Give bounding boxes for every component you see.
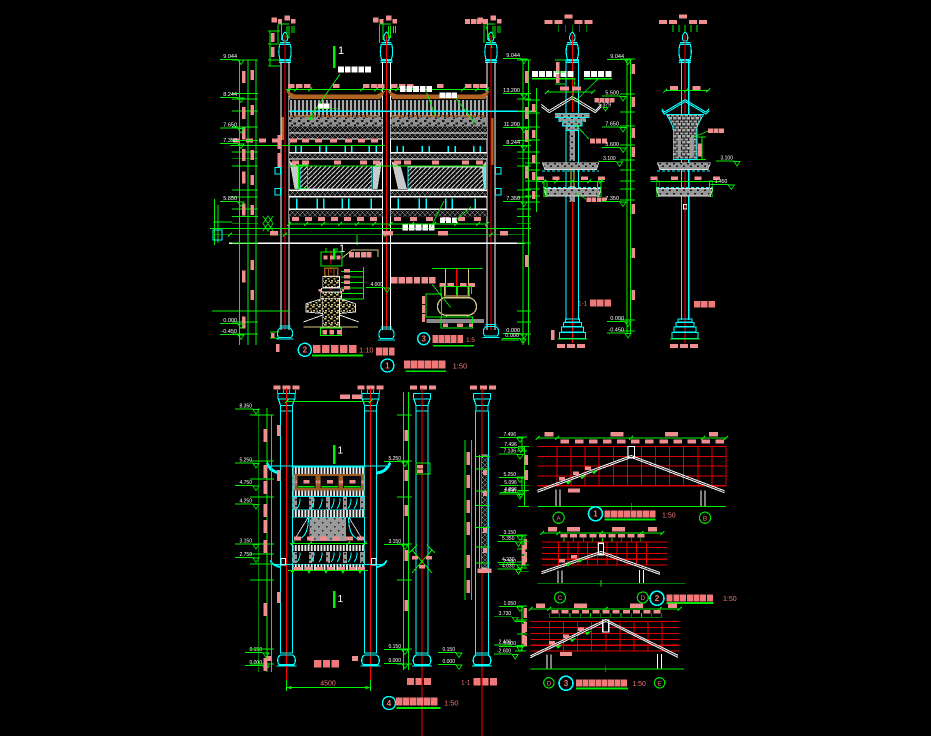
- svg-text:4500: 4500: [320, 681, 336, 688]
- svg-text:D: D: [547, 680, 552, 687]
- svg-text:1: 1: [338, 45, 344, 57]
- svg-text:3: 3: [564, 679, 569, 688]
- svg-text:2: 2: [303, 346, 308, 355]
- svg-text:1: 1: [385, 361, 390, 370]
- svg-text:B: B: [703, 515, 707, 522]
- svg-text:1-1: 1-1: [461, 680, 471, 687]
- svg-text:C: C: [558, 595, 563, 602]
- svg-text:1: 1: [338, 594, 344, 605]
- svg-text:1:10: 1:10: [359, 345, 374, 354]
- svg-text:1:50: 1:50: [453, 361, 468, 370]
- svg-text:1-1: 1-1: [578, 301, 588, 308]
- svg-text:1: 1: [338, 446, 344, 457]
- svg-text:1:50: 1:50: [444, 698, 459, 707]
- svg-text:2: 2: [655, 594, 660, 603]
- svg-text:1:50: 1:50: [632, 681, 646, 688]
- svg-text:1:5: 1:5: [466, 337, 475, 344]
- svg-text:A: A: [556, 515, 561, 522]
- svg-text:3: 3: [421, 335, 426, 344]
- svg-text:1:50: 1:50: [723, 596, 737, 603]
- svg-text:1: 1: [593, 510, 598, 519]
- svg-text:D: D: [640, 595, 645, 602]
- svg-text:E: E: [657, 680, 662, 687]
- svg-text:1:50: 1:50: [662, 512, 676, 519]
- svg-text:4: 4: [387, 699, 392, 708]
